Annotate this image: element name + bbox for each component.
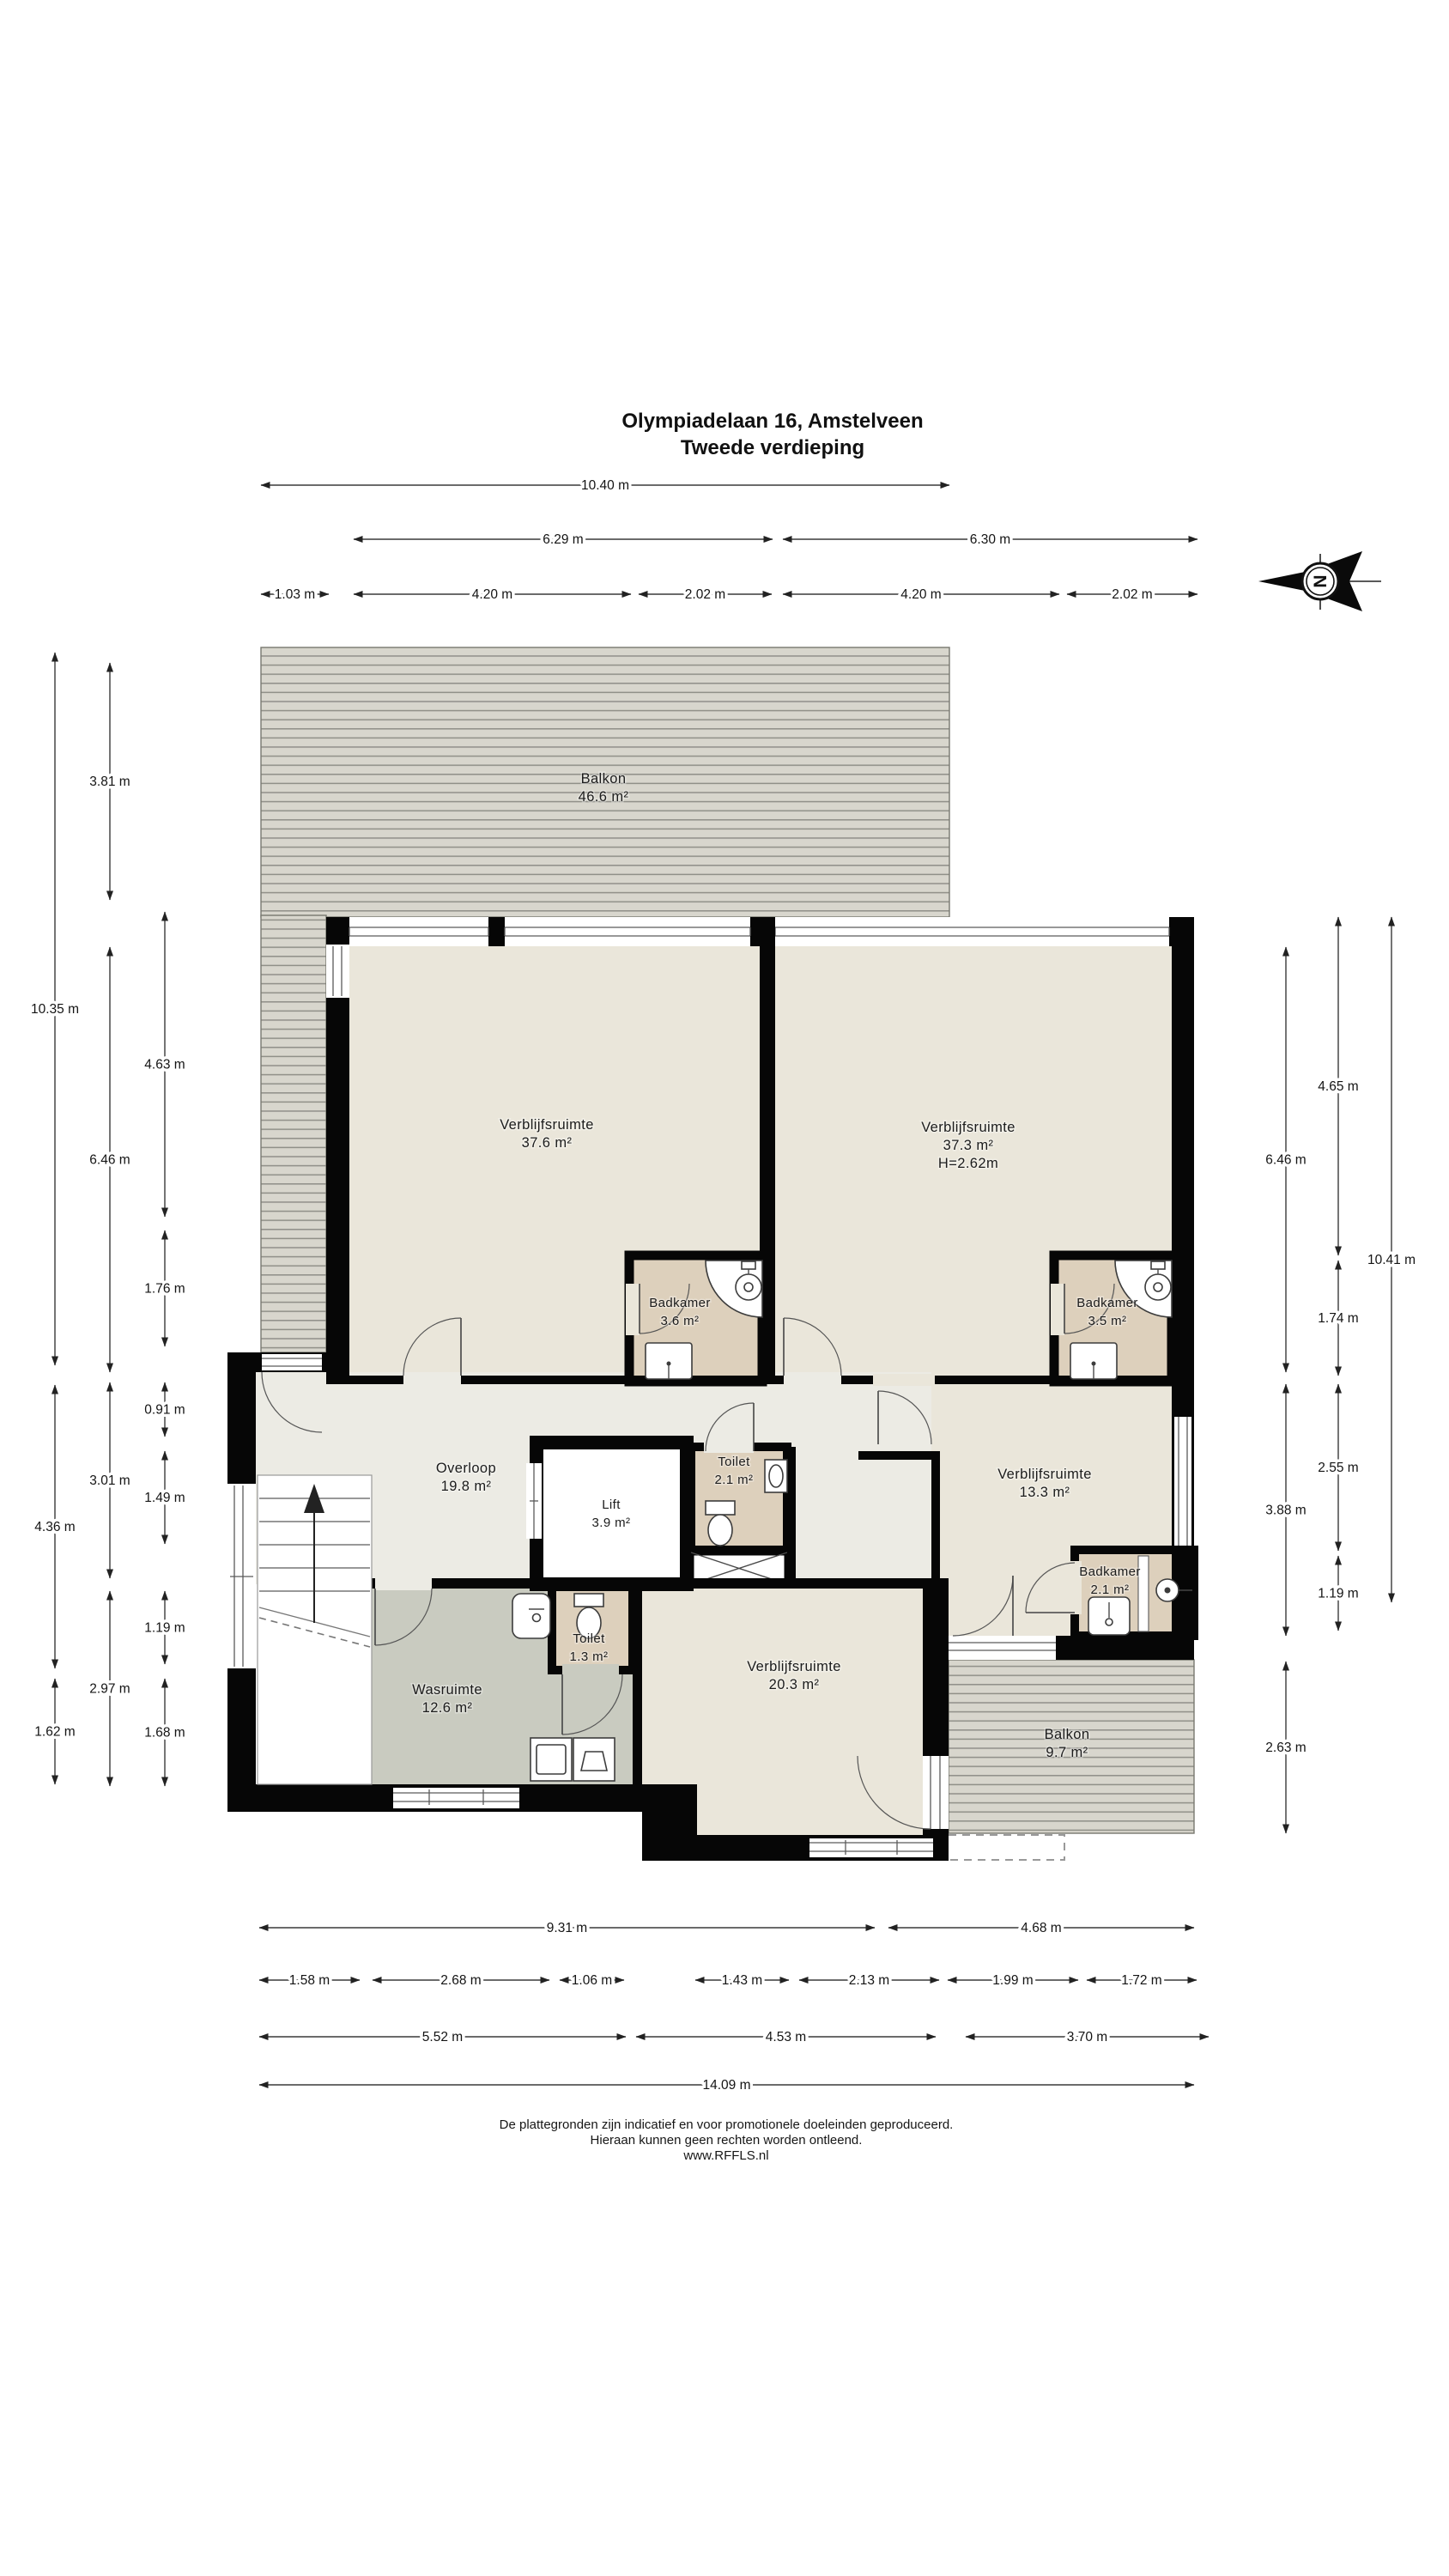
dim-label-right-6: 1.19 m	[1318, 1587, 1358, 1601]
dim-bottom-6: 2.13 m	[799, 1973, 939, 1988]
balcony-left-strip	[261, 915, 326, 1352]
toilet-icon	[574, 1594, 603, 1607]
dim-bottom-3: 2.68 m	[373, 1973, 549, 1988]
room-label-balkon-97-area: 9.7 m²	[1046, 1745, 1088, 1760]
window-wasruimte	[393, 1788, 519, 1808]
dim-label-bottom-9: 5.52 m	[422, 2030, 463, 2044]
room-label-lift-name: Lift	[602, 1498, 621, 1512]
dim-label-left-4: 6.46 m	[89, 1153, 130, 1168]
room-label-toilet-13-name: Toilet	[573, 1631, 605, 1646]
room-label-wasruimte-area: 12.6 m²	[422, 1700, 473, 1716]
dim-right-4: 1.74 m	[1318, 1261, 1358, 1376]
dim-left-11: 1.19 m	[144, 1591, 185, 1664]
dim-label-left-10: 1.49 m	[144, 1491, 185, 1505]
sink-icon	[512, 1594, 550, 1638]
room-label-verblijfsruimte-203-name: Verblijfsruimte	[747, 1659, 841, 1674]
dim-top-0: 10.40 m	[261, 478, 949, 493]
room-label-verblijfsruimte-376-area: 37.6 m²	[522, 1135, 573, 1151]
dim-label-right-1: 3.88 m	[1265, 1504, 1306, 1518]
dim-bottom-5: 1.43 m	[695, 1973, 789, 1988]
dim-left-3: 3.81 m	[89, 663, 130, 900]
title-address: Olympiadelaan 16, Amstelveen	[621, 410, 923, 433]
dim-label-bottom-12: 14.09 m	[702, 2078, 750, 2093]
room-label-balkon-97-name: Balkon	[1045, 1727, 1090, 1742]
north-arrow-icon: N	[1258, 551, 1381, 611]
dim-label-bottom-5: 1.43 m	[722, 1973, 762, 1988]
dim-label-top-7: 2.02 m	[1112, 587, 1152, 602]
toilet-icon	[706, 1501, 735, 1515]
dim-label-left-6: 2.97 m	[89, 1682, 130, 1697]
dim-left-6: 2.97 m	[89, 1591, 130, 1786]
dim-label-top-1: 6.29 m	[543, 532, 583, 547]
dim-label-bottom-8: 1.72 m	[1121, 1973, 1161, 1988]
dim-label-top-5: 2.02 m	[685, 587, 725, 602]
dim-bottom-7: 1.99 m	[948, 1973, 1078, 1988]
dim-label-bottom-11: 3.70 m	[1067, 2030, 1107, 2044]
dim-label-left-3: 3.81 m	[89, 775, 130, 789]
dim-right-1: 3.88 m	[1265, 1384, 1306, 1636]
dim-top-7: 2.02 m	[1067, 587, 1197, 602]
dim-label-left-7: 4.63 m	[144, 1058, 185, 1072]
dim-label-bottom-4: 1.06 m	[572, 1973, 612, 1988]
dim-right-0: 6.46 m	[1265, 947, 1306, 1372]
dim-top-1: 6.29 m	[354, 532, 773, 547]
dim-label-left-12: 1.68 m	[144, 1726, 185, 1741]
dim-label-right-4: 1.74 m	[1318, 1311, 1358, 1326]
dim-left-5: 3.01 m	[89, 1382, 130, 1578]
room-label-toilet-21-area: 2.1 m²	[715, 1473, 754, 1487]
footer-disclaimer: De plattegronden zijn indicatief en voor…	[500, 2117, 954, 2163]
dim-left-10: 1.49 m	[144, 1451, 185, 1544]
room-label-verblijfsruimte-373-name: Verblijfsruimte	[921, 1120, 1016, 1135]
dim-label-left-2: 1.62 m	[34, 1725, 75, 1740]
dim-bottom-9: 5.52 m	[259, 2030, 626, 2044]
room-label-badkamer-35-name: Badkamer	[1076, 1296, 1138, 1310]
compass-letter: N	[1311, 574, 1331, 587]
dim-label-left-1: 4.36 m	[34, 1520, 75, 1534]
dim-label-right-5: 2.55 m	[1318, 1461, 1358, 1475]
room-label-wasruimte-name: Wasruimte	[412, 1682, 482, 1698]
room-label-overloop-name: Overloop	[436, 1461, 496, 1476]
footer-line-2: Hieraan kunnen geen rechten worden ontle…	[591, 2133, 863, 2148]
floorplan-svg: Olympiadelaan 16, Amstelveen Tweede verd…	[0, 0, 1449, 2576]
dim-label-right-7: 10.41 m	[1367, 1253, 1416, 1267]
floorplan-page: Olympiadelaan 16, Amstelveen Tweede verd…	[0, 0, 1449, 2576]
dim-label-bottom-10: 4.53 m	[766, 2030, 806, 2044]
room-lift	[537, 1443, 687, 1584]
dim-right-6: 1.19 m	[1318, 1556, 1358, 1631]
dim-right-2: 2.63 m	[1265, 1662, 1306, 1833]
dim-left-4: 6.46 m	[89, 947, 130, 1372]
dim-label-right-0: 6.46 m	[1265, 1153, 1306, 1168]
room-label-balkon-top-name: Balkon	[581, 771, 627, 787]
room-label-badkamer-36-name: Badkamer	[649, 1296, 711, 1310]
room-label-verblijfsruimte-376-name: Verblijfsruimte	[500, 1117, 594, 1133]
room-label-badkamer-21-area: 2.1 m²	[1091, 1583, 1130, 1597]
room-label-verblijfsruimte-203-area: 20.3 m²	[769, 1677, 820, 1692]
room-label-toilet-13-area: 1.3 m²	[570, 1649, 609, 1664]
dim-left-0: 10.35 m	[31, 653, 79, 1365]
dim-right-5: 2.55 m	[1318, 1384, 1358, 1551]
dim-label-bottom-3: 2.68 m	[440, 1973, 481, 1988]
dim-bottom-11: 3.70 m	[966, 2030, 1209, 2044]
dim-right-3: 4.65 m	[1318, 917, 1358, 1255]
dim-label-left-8: 1.76 m	[144, 1282, 185, 1297]
staircase	[258, 1475, 372, 1784]
dim-top-4: 4.20 m	[354, 587, 631, 602]
dim-left-12: 1.68 m	[144, 1679, 185, 1786]
dim-label-left-11: 1.19 m	[144, 1621, 185, 1636]
dim-bottom-8: 1.72 m	[1087, 1973, 1197, 1988]
room-label-badkamer-35-area: 3.5 m²	[1088, 1314, 1127, 1328]
dim-left-2: 1.62 m	[34, 1679, 75, 1784]
dim-label-left-9: 0.91 m	[144, 1403, 185, 1418]
dim-label-bottom-7: 1.99 m	[992, 1973, 1033, 1988]
dim-label-top-6: 4.20 m	[900, 587, 941, 602]
dim-label-right-2: 2.63 m	[1265, 1741, 1306, 1755]
room-label-overloop-area: 19.8 m²	[441, 1479, 492, 1494]
dim-left-7: 4.63 m	[144, 912, 185, 1217]
dim-top-5: 2.02 m	[639, 587, 772, 602]
dim-label-bottom-0: 9.31 m	[547, 1921, 587, 1935]
window-verblijfsruimte-13-right	[1174, 1417, 1191, 1546]
dim-label-right-3: 4.65 m	[1318, 1079, 1358, 1094]
window-left-upper	[326, 945, 349, 998]
page-title: Olympiadelaan 16, Amstelveen Tweede verd…	[621, 410, 923, 459]
window-balkon-97	[949, 1636, 1056, 1660]
dim-top-6: 4.20 m	[783, 587, 1059, 602]
dim-bottom-12: 14.09 m	[259, 2078, 1194, 2093]
window-left-lower	[227, 1484, 256, 1668]
room-label-verblijfsruimte-133-name: Verblijfsruimte	[997, 1467, 1092, 1482]
room-label-balkon-top-area: 46.6 m²	[579, 789, 629, 805]
dim-bottom-2: 1.58 m	[259, 1973, 360, 1988]
room-label-verblijfsruimte-373-height: H=2.62m	[938, 1156, 998, 1171]
room-label-toilet-21-name: Toilet	[718, 1455, 750, 1469]
dim-label-top-3: 1.03 m	[275, 587, 315, 602]
footer-line-1: De plattegronden zijn indicatief en voor…	[500, 2117, 954, 2132]
dim-label-bottom-2: 1.58 m	[289, 1973, 330, 1988]
footer-line-3: www.RFFLS.nl	[682, 2148, 768, 2163]
dim-label-top-0: 10.40 m	[581, 478, 629, 493]
dim-left-9: 0.91 m	[144, 1382, 185, 1437]
dim-left-8: 1.76 m	[144, 1230, 185, 1346]
dim-top-3: 1.03 m	[261, 587, 329, 602]
dim-left-1: 4.36 m	[34, 1385, 75, 1668]
dim-right-7: 10.41 m	[1367, 917, 1416, 1602]
room-label-verblijfsruimte-373-area: 37.3 m²	[943, 1138, 994, 1153]
dim-label-top-4: 4.20 m	[472, 587, 512, 602]
dim-bottom-4: 1.06 m	[560, 1973, 624, 1988]
dim-label-top-2: 6.30 m	[970, 532, 1010, 547]
dim-top-2: 6.30 m	[783, 532, 1197, 547]
dim-bottom-0: 9.31 m	[259, 1921, 875, 1935]
room-label-badkamer-36-area: 3.6 m²	[661, 1314, 700, 1328]
dim-label-bottom-1: 4.68 m	[1021, 1921, 1061, 1935]
dim-label-left-5: 3.01 m	[89, 1473, 130, 1488]
dim-label-bottom-6: 2.13 m	[849, 1973, 889, 1988]
room-label-lift-area: 3.9 m²	[592, 1516, 631, 1530]
window-verblijfsruimte-20	[809, 1838, 933, 1857]
dim-bottom-10: 4.53 m	[636, 2030, 936, 2044]
dim-label-left-0: 10.35 m	[31, 1002, 79, 1017]
room-label-verblijfsruimte-133-area: 13.3 m²	[1020, 1485, 1070, 1500]
room-label-badkamer-21-name: Badkamer	[1079, 1564, 1141, 1579]
title-floor: Tweede verdieping	[681, 436, 864, 459]
dim-bottom-1: 4.68 m	[888, 1921, 1194, 1935]
